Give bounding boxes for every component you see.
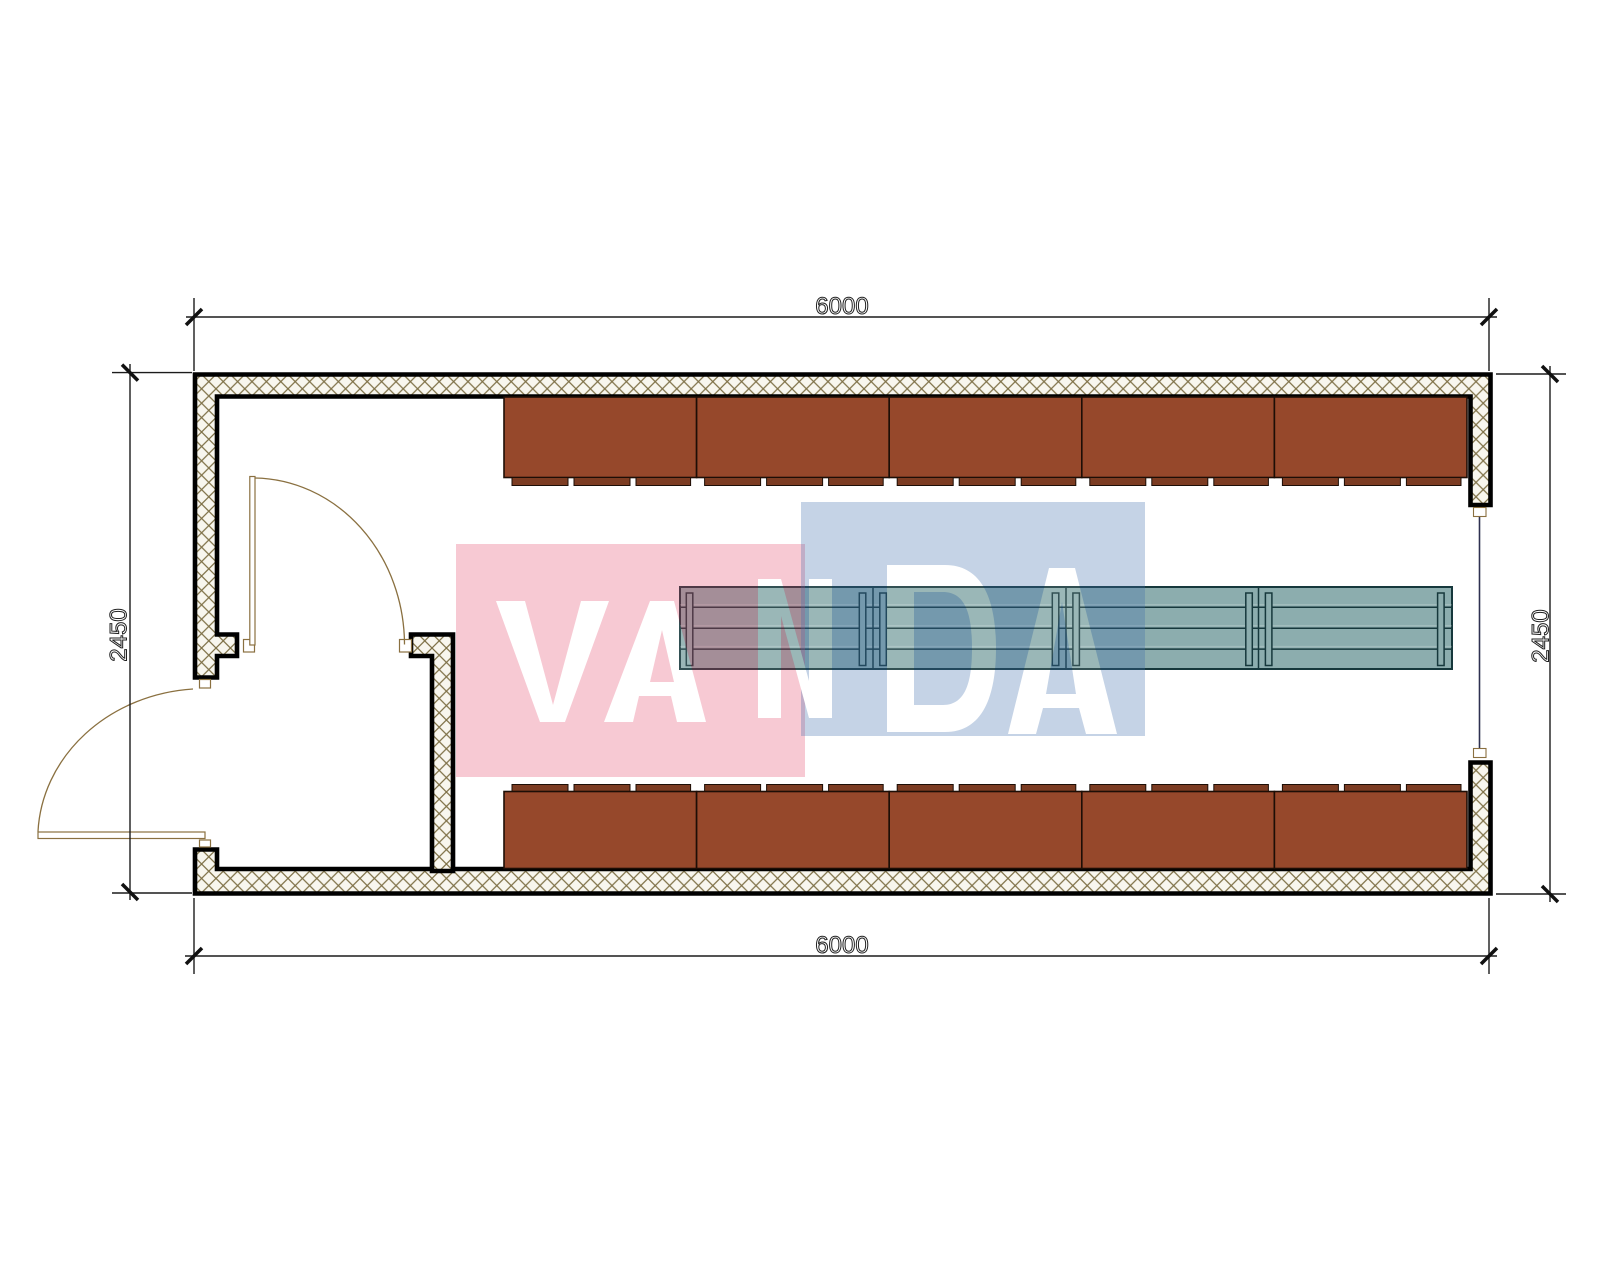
svg-text:2450: 2450 <box>106 608 133 661</box>
svg-text:6000: 6000 <box>815 293 868 320</box>
svg-text:6000: 6000 <box>815 932 868 959</box>
svg-text:2450: 2450 <box>1528 609 1555 662</box>
